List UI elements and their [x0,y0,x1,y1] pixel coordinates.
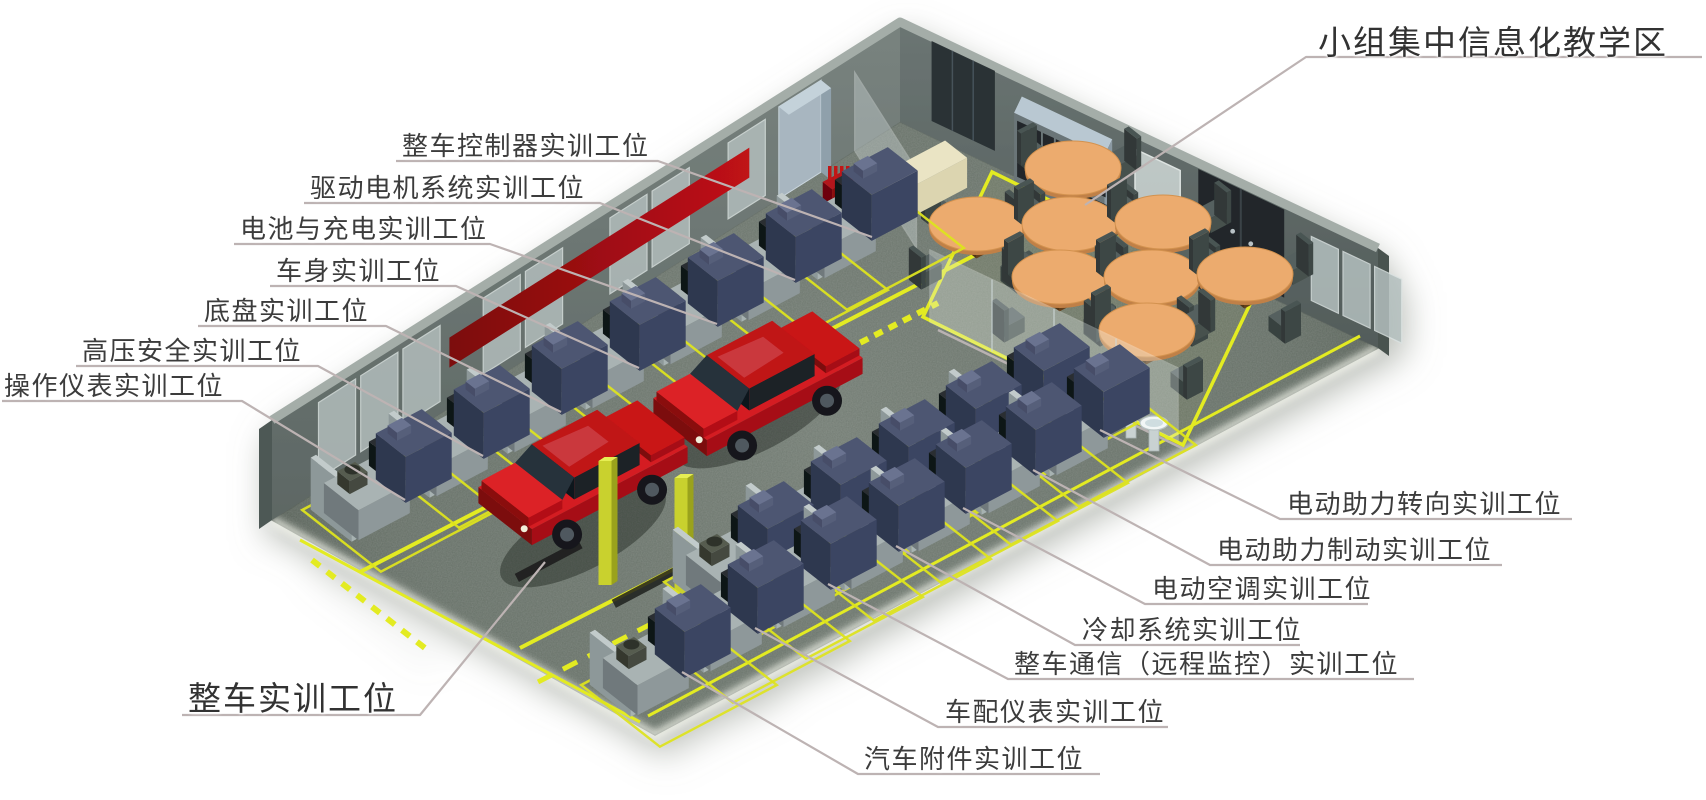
label-eps-braking-station: 电动助力制动实训工位 [1217,530,1492,567]
label-vehicle-controller-station: 整车控制器实训工位 [402,126,650,163]
label-battery-charging-station: 电池与充电实训工位 [240,209,488,246]
facility-diagram: 整车控制器实训工位驱动电机系统实训工位电池与充电实训工位车身实训工位底盘实训工位… [0,0,1706,800]
label-cooling-system-station: 冷却系统实训工位 [1082,610,1302,647]
label-dashboard-instrument-station: 车配仪表实训工位 [945,692,1165,729]
label-group-teaching-area: 小组集中信息化教学区 [1318,16,1668,64]
label-instrument-operation-station: 操作仪表实训工位 [4,366,224,403]
label-chassis-station: 底盘实训工位 [204,291,369,328]
label-whole-vehicle-station: 整车实训工位 [188,672,398,720]
label-eps-steering-station: 电动助力转向实训工位 [1287,484,1562,521]
label-hv-safety-station: 高压安全实训工位 [82,331,302,368]
label-body-station: 车身实训工位 [276,251,441,288]
label-electric-ac-station: 电动空调实训工位 [1152,569,1372,606]
label-auto-accessories-station: 汽车附件实训工位 [864,739,1084,776]
label-vehicle-communication-station: 整车通信（远程监控）实训工位 [1014,644,1399,681]
label-drive-motor-station: 驱动电机系统实训工位 [310,168,585,205]
lift-post [599,457,618,585]
